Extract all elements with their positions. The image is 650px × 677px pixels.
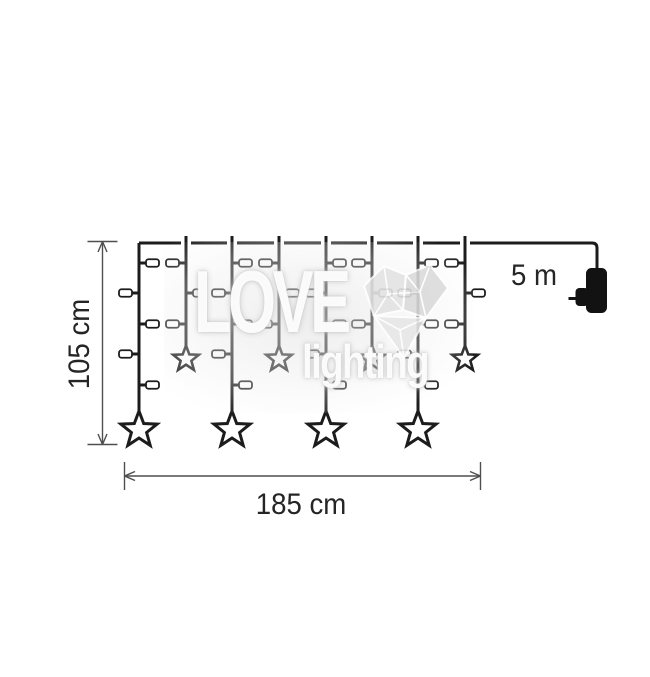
- cable-length-label: 5 m: [511, 259, 557, 293]
- led-bulb: [425, 381, 438, 389]
- star-ornament-large: [308, 411, 344, 445]
- led-bulb: [119, 289, 132, 297]
- led-bulb: [259, 320, 272, 328]
- led-bulb: [212, 350, 225, 358]
- led-bulb: [306, 350, 319, 358]
- star-ornament-small: [359, 346, 385, 370]
- led-bulb: [425, 320, 438, 328]
- led-bulb: [352, 259, 365, 267]
- star-ornament-large: [214, 411, 250, 445]
- star-ornament-small: [173, 346, 199, 370]
- star-ornament-large: [121, 411, 157, 445]
- power-plug: [586, 268, 607, 313]
- led-bulb: [445, 320, 458, 328]
- led-bulb: [166, 320, 179, 328]
- led-bulb: [119, 350, 132, 358]
- led-bulb: [352, 320, 365, 328]
- led-bulb: [146, 320, 159, 328]
- star-ornament-small: [266, 346, 292, 370]
- height-dimension-label: 105 cm: [63, 299, 97, 390]
- led-bulb: [212, 289, 225, 297]
- led-bulb: [286, 289, 299, 297]
- star-ornament-small: [452, 346, 478, 370]
- led-bulb: [445, 259, 458, 267]
- led-bulb: [333, 320, 346, 328]
- led-bulb: [379, 289, 392, 297]
- led-bulb: [239, 381, 252, 389]
- led-bulb: [333, 259, 346, 267]
- led-bulb: [398, 350, 411, 358]
- led-bulb: [239, 259, 252, 267]
- led-bulb: [166, 259, 179, 267]
- led-bulb: [398, 289, 411, 297]
- led-bulb: [472, 289, 485, 297]
- curtain-diagram: [0, 0, 650, 677]
- led-bulb: [259, 259, 272, 267]
- led-bulb: [146, 381, 159, 389]
- led-bulb: [239, 320, 252, 328]
- product-diagram-image: LOVE lighting 105 cm 185 cm 5 m: [0, 0, 650, 677]
- star-ornament-large: [400, 411, 436, 445]
- width-dimension-label: 185 cm: [256, 488, 347, 522]
- led-bulb: [146, 259, 159, 267]
- led-bulb: [193, 289, 206, 297]
- led-bulb: [333, 381, 346, 389]
- led-bulb: [425, 259, 438, 267]
- led-bulb: [306, 289, 319, 297]
